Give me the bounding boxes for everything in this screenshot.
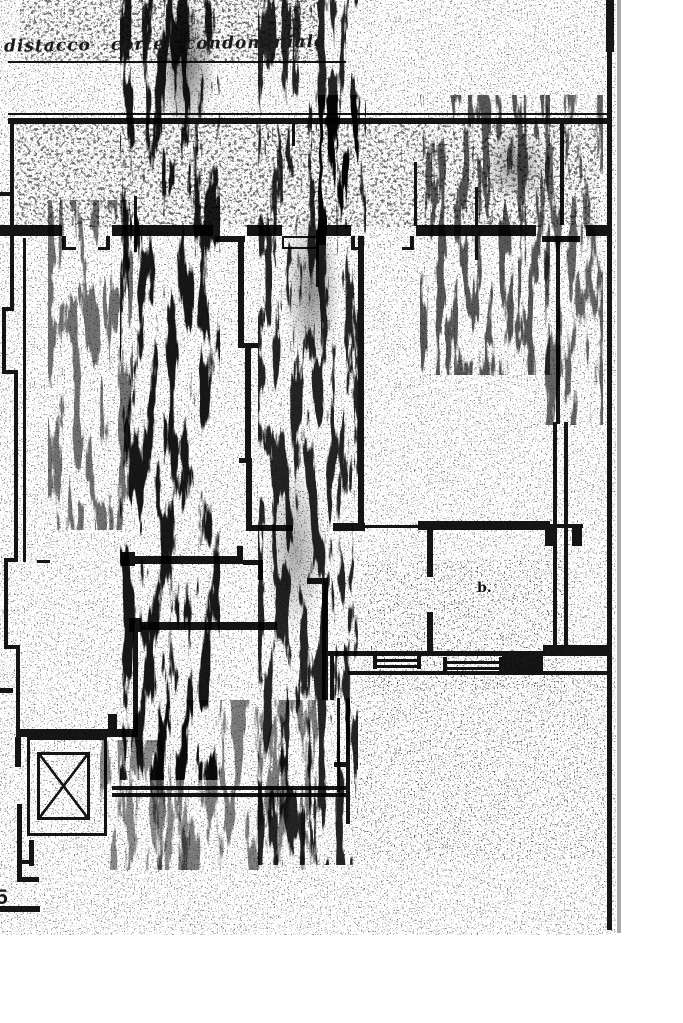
wall-segment [337, 698, 340, 792]
elevator-shaft-symbol [27, 737, 107, 836]
wall-segment [375, 665, 419, 668]
wall-segment [108, 714, 117, 732]
wall-segment [8, 118, 608, 124]
wall-segment [8, 61, 346, 63]
wall-segment [112, 786, 350, 790]
wall-segment [246, 463, 252, 531]
wall-segment [131, 622, 277, 630]
wall-segment [292, 122, 295, 146]
wall-segment [475, 187, 478, 260]
wall-segment [4, 558, 8, 649]
wall-segment [14, 370, 18, 562]
wall-segment [0, 688, 13, 693]
wall-segment [375, 659, 419, 662]
wall-segment [427, 530, 433, 577]
wall-segment [333, 523, 365, 531]
wall-segment [98, 247, 110, 250]
margin-number: 5 [0, 886, 8, 910]
wall-segment [258, 560, 263, 580]
wall-segment [37, 560, 50, 563]
wall-segment [123, 556, 243, 564]
wall-segment [414, 162, 417, 226]
wall-segment [23, 238, 26, 562]
wall-segment [445, 667, 501, 670]
wall-segment [445, 661, 501, 664]
wall-segment [556, 240, 560, 424]
room-label-b: b. [477, 580, 492, 596]
wall-segment [364, 525, 418, 528]
wall-segment [564, 422, 568, 648]
wall-segment [10, 230, 14, 310]
floorplan-walls [0, 0, 683, 1023]
wall-segment [17, 804, 22, 882]
wall-segment [330, 652, 334, 700]
wall-segment [22, 860, 34, 864]
wall-segment [8, 113, 608, 115]
wall-segment [560, 122, 564, 225]
wall-segment [17, 877, 39, 882]
wall-segment [134, 196, 137, 252]
wall-segment [18, 729, 138, 737]
wall-segment [15, 737, 21, 767]
wall-segment [16, 645, 20, 737]
wall-segment [62, 247, 76, 250]
wall-segment [247, 225, 282, 236]
wall-segment [2, 307, 6, 374]
wall-segment [427, 612, 433, 653]
wall-segment [112, 225, 213, 236]
wall-segment [238, 240, 244, 346]
wall-segment [358, 236, 364, 523]
wall-segment [346, 698, 350, 824]
wall-segment [348, 671, 608, 675]
wall-segment [318, 225, 351, 236]
wall-segment [586, 225, 608, 236]
wall-segment [248, 525, 293, 531]
wall-segment [502, 651, 543, 674]
elevator-x-icon [37, 752, 90, 820]
wall-segment [402, 247, 414, 250]
scanned-floorplan-page: distacco corte condominiale b. 5 [0, 0, 683, 1023]
wall-segment [0, 192, 12, 196]
wall-segment [245, 348, 251, 463]
wall-segment [416, 225, 536, 236]
wall-segment [542, 236, 580, 242]
wall-segment [334, 762, 350, 767]
wall-segment [418, 521, 550, 530]
wall-segment [322, 578, 328, 700]
wall-segment [133, 630, 138, 737]
window-sill-outline [282, 236, 318, 249]
wall-segment [545, 524, 583, 528]
wall-segment [10, 118, 14, 230]
wall-segment [543, 645, 608, 654]
wall-segment [112, 793, 350, 797]
